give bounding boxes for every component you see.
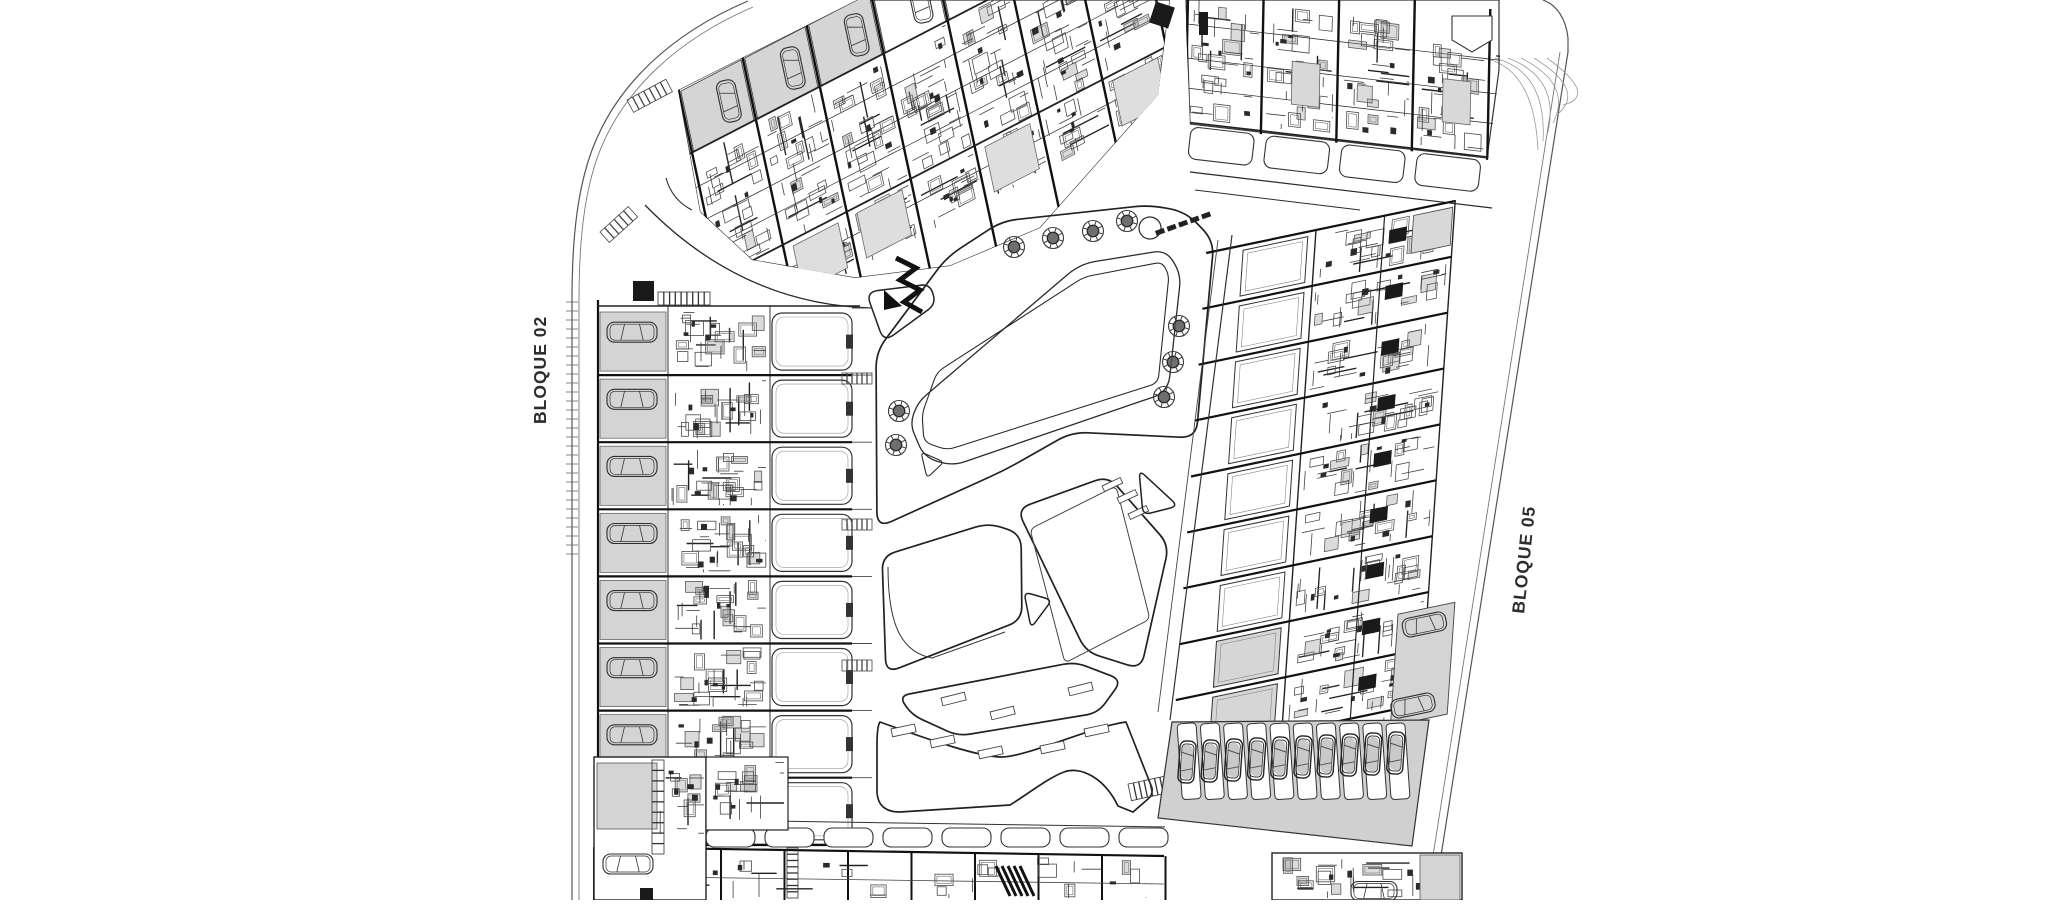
svg-text:BLOQUE 02: BLOQUE 02 [530, 316, 550, 424]
